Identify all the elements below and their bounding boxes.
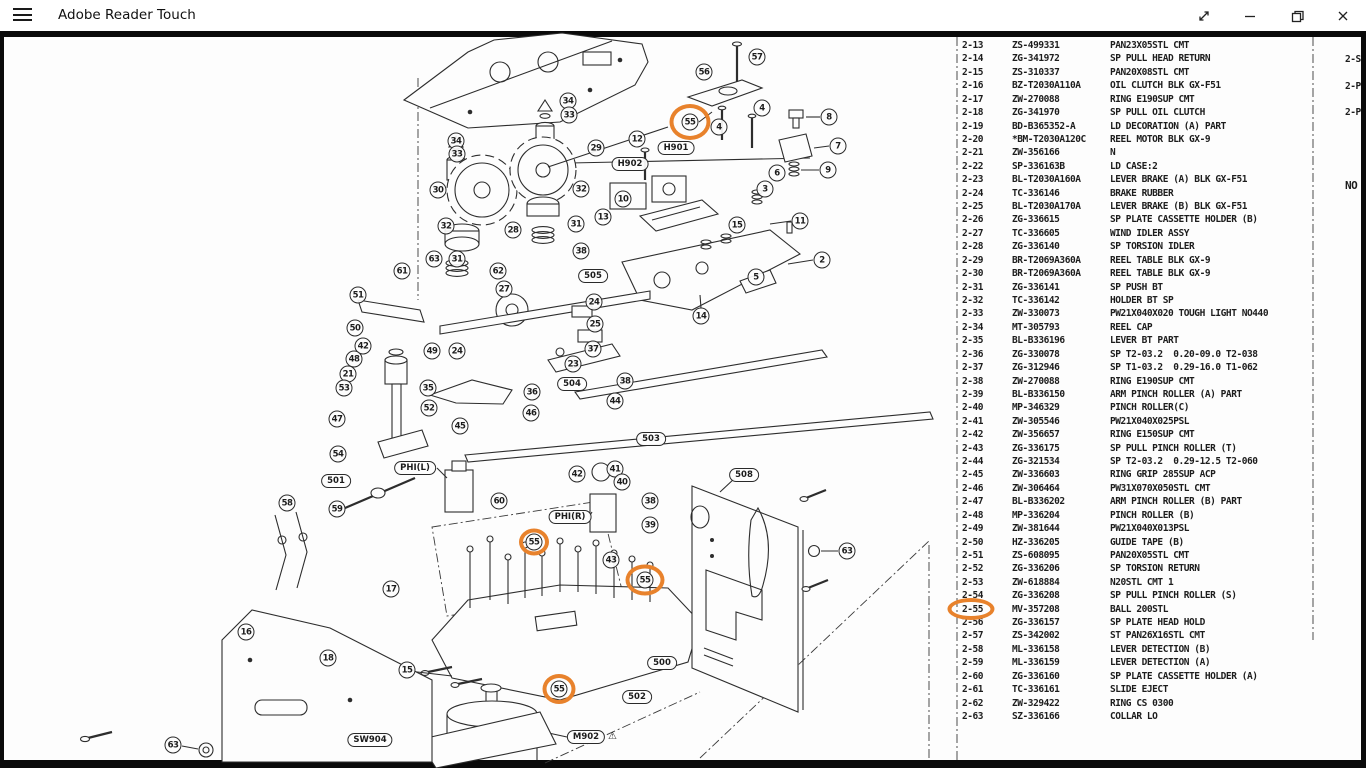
parts-desc: SP PULL PINCH ROLLER (T) [1110, 443, 1236, 454]
parts-part: ZS-366165 [1012, 37, 1059, 38]
parts-part: ZG-341970 [1012, 107, 1059, 118]
parts-desc: REEL TABLE BLK GX-9 [1110, 255, 1210, 266]
parts-ref: 2-28 [962, 241, 983, 252]
parts-desc: LD CASE:2 [1110, 161, 1157, 172]
parts-desc: SP TORSION RETURN [1110, 563, 1200, 574]
side-fragment: 2-P [1345, 81, 1361, 92]
parts-desc: PW21X040X013PSL [1110, 523, 1189, 534]
parts-desc: N [1110, 147, 1115, 158]
parts-part: BZ-T2030A110A [1012, 80, 1081, 91]
parts-ref: 2-58 [962, 644, 983, 655]
parts-part: BL-B336202 [1012, 496, 1065, 507]
app-window: Adobe Reader Touch [0, 0, 1366, 768]
parts-part: ML-336159 [1012, 657, 1059, 668]
parts-desc: LD DECORATION (A) PART [1110, 121, 1226, 132]
parts-part: TC-336605 [1012, 228, 1059, 239]
parts-part: MV-357208 [1012, 604, 1059, 615]
parts-desc: PAN20X05STL CMT [1110, 550, 1189, 561]
parts-desc: RING E190SUP CMT [1110, 376, 1194, 387]
parts-part: ZG-336160 [1012, 671, 1059, 682]
parts-ref: 2-41 [962, 416, 983, 427]
parts-ref: 2-21 [962, 147, 983, 158]
parts-part: BR-T2069A360A [1012, 268, 1081, 279]
parts-desc: SP PLATE CASSETTE HOLDER (A) [1110, 671, 1258, 682]
parts-ref: 2-24 [962, 188, 983, 199]
parts-ref: 2-54 [962, 590, 983, 601]
parts-desc: OIL CLUTCH BLK GX-F51 [1110, 80, 1221, 91]
parts-desc: SP PULL PINCH ROLLER (S) [1110, 590, 1236, 601]
parts-ref: 2-14 [962, 53, 983, 64]
parts-ref: 2-25 [962, 201, 983, 212]
parts-ref: 2-44 [962, 456, 983, 467]
parts-part: ZG-336140 [1012, 241, 1059, 252]
parts-ref: 2-50 [962, 537, 983, 548]
parts-part: ZS-499331 [1012, 40, 1059, 51]
parts-desc: SP PAN26X05STL CMT [1110, 37, 1205, 38]
fullscreen-button[interactable] [1181, 0, 1227, 31]
parts-desc: PAN20X08STL CMT [1110, 67, 1189, 78]
parts-ref: 2-20 [962, 134, 983, 145]
close-icon [1335, 8, 1351, 24]
parts-ref: 2-42 [962, 429, 983, 440]
parts-desc: SP PUSH BT [1110, 282, 1163, 293]
parts-ref: 2-33 [962, 308, 983, 319]
parts-ref: 2-23 [962, 174, 983, 185]
parts-part: ZG-336208 [1012, 590, 1059, 601]
parts-part: ZG-312946 [1012, 362, 1059, 373]
restore-icon [1289, 8, 1305, 24]
parts-part: MP-336204 [1012, 510, 1059, 521]
parts-part: TC-336142 [1012, 295, 1059, 306]
parts-ref: 2-16 [962, 80, 983, 91]
parts-part: SP-336163B [1012, 161, 1065, 172]
parts-desc: SP PULL HEAD RETURN [1110, 53, 1210, 64]
parts-ref: 2-51 [962, 550, 983, 561]
parts-part: SZ-336166 [1012, 711, 1059, 722]
parts-desc: SP PLATE CASSETTE HOLDER (B) [1110, 214, 1258, 225]
parts-desc: RING CS 0300 [1110, 698, 1173, 709]
parts-ref: 2-35 [962, 335, 983, 346]
close-button[interactable] [1320, 0, 1366, 31]
parts-part: ZG-330078 [1012, 349, 1059, 360]
parts-ref: 2-43 [962, 443, 983, 454]
parts-part: HZ-336205 [1012, 537, 1059, 548]
parts-ref: 2-55 [962, 604, 983, 615]
parts-ref: 2-59 [962, 657, 983, 668]
parts-ref: 2-15 [962, 67, 983, 78]
parts-part: MT-305793 [1012, 322, 1059, 333]
parts-desc: SP T2-03.2 0.20-09.0 T2-038 [1110, 349, 1258, 360]
parts-ref: 2-46 [962, 483, 983, 494]
parts-part: TC-336146 [1012, 188, 1059, 199]
parts-desc: LEVER BRAKE (A) BLK GX-F51 [1110, 174, 1247, 185]
parts-ref: 2-49 [962, 523, 983, 534]
parts-part: ZG-336175 [1012, 443, 1059, 454]
parts-part: ZW-329422 [1012, 698, 1059, 709]
parts-part: ZG-336157 [1012, 617, 1059, 628]
parts-list: 2-12ZS-366165SP PAN26X05STL CMT2-13ZS-49… [4, 37, 1361, 760]
hamburger-menu-icon[interactable] [13, 8, 37, 24]
parts-desc: PINCH ROLLER (B) [1110, 510, 1194, 521]
parts-ref: 2-38 [962, 376, 983, 387]
parts-desc: SP TORSION IDLER [1110, 241, 1194, 252]
parts-ref: 2-47 [962, 496, 983, 507]
side-fragment: 2-P [1345, 107, 1361, 118]
parts-part: MP-346329 [1012, 402, 1059, 413]
parts-part: ZW-330073 [1012, 308, 1059, 319]
parts-part: ZW-336603 [1012, 469, 1059, 480]
parts-desc: BALL 200STL [1110, 604, 1168, 615]
side-fragment: NO [1345, 179, 1357, 192]
parts-part: ZW-305546 [1012, 416, 1059, 427]
parts-desc: LEVER BT PART [1110, 335, 1179, 346]
parts-desc: SP T2-03.2 0.29-12.5 T2-060 [1110, 456, 1258, 467]
side-fragment: 2-S [1345, 54, 1361, 65]
parts-desc: PW31X070X050STL CMT [1110, 483, 1210, 494]
parts-ref: 2-39 [962, 389, 983, 400]
parts-part: ZW-270088 [1012, 376, 1059, 387]
fullscreen-icon [1196, 8, 1212, 24]
parts-desc: BRAKE RUBBER [1110, 188, 1173, 199]
parts-ref: 2-29 [962, 255, 983, 266]
parts-part: BL-B336196 [1012, 335, 1065, 346]
parts-desc: SP PULL OIL CLUTCH [1110, 107, 1205, 118]
parts-ref: 2-18 [962, 107, 983, 118]
parts-ref: 2-60 [962, 671, 983, 682]
parts-part: ZG-341972 [1012, 53, 1059, 64]
parts-desc: REEL TABLE BLK GX-9 [1110, 268, 1210, 279]
parts-part: ZS-310337 [1012, 67, 1059, 78]
parts-desc: SLIDE EJECT [1110, 684, 1168, 695]
parts-part: ZW-381644 [1012, 523, 1059, 534]
parts-part: ZG-336615 [1012, 214, 1059, 225]
parts-ref: 2-32 [962, 295, 983, 306]
parts-ref: 2-56 [962, 617, 983, 628]
parts-desc: RING E190SUP CMT [1110, 94, 1194, 105]
parts-part: ZW-306464 [1012, 483, 1059, 494]
parts-ref: 2-62 [962, 698, 983, 709]
parts-desc: GUIDE TAPE (B) [1110, 537, 1184, 548]
parts-desc: LEVER DETECTION (A) [1110, 657, 1210, 668]
parts-ref: 2-37 [962, 362, 983, 373]
window-title: Adobe Reader Touch [58, 7, 196, 23]
restore-button[interactable] [1274, 0, 1320, 31]
parts-desc: SP T1-03.2 0.29-16.0 T1-062 [1110, 362, 1258, 373]
parts-ref: 2-27 [962, 228, 983, 239]
parts-ref: 2-53 [962, 577, 983, 588]
parts-desc: SP PLATE HEAD HOLD [1110, 617, 1205, 628]
parts-part: ZW-356657 [1012, 429, 1059, 440]
parts-part: ML-336158 [1012, 644, 1059, 655]
parts-desc: REEL MOTOR BLK GX-9 [1110, 134, 1210, 145]
parts-desc: HOLDER BT SP [1110, 295, 1173, 306]
parts-desc: PINCH ROLLER(C) [1110, 402, 1189, 413]
parts-ref: 2-17 [962, 94, 983, 105]
parts-part: ZW-270088 [1012, 94, 1059, 105]
parts-ref: 2-30 [962, 268, 983, 279]
parts-part: BL-T2030A170A [1012, 201, 1081, 212]
parts-part: ZG-336141 [1012, 282, 1059, 293]
parts-desc: PAN23X05STL CMT [1110, 40, 1189, 51]
parts-part: BL-T2030A160A [1012, 174, 1081, 185]
parts-desc: LEVER BRAKE (B) BLK GX-F51 [1110, 201, 1247, 212]
parts-part: BL-B336150 [1012, 389, 1065, 400]
parts-ref: 2-61 [962, 684, 983, 695]
parts-desc: PW21X040X025PSL [1110, 416, 1189, 427]
parts-part: ZW-356166 [1012, 147, 1059, 158]
parts-desc: LEVER DETECTION (B) [1110, 644, 1210, 655]
parts-part: *BM-T2030A120C [1012, 134, 1086, 145]
parts-desc: RING GRIP 285SUP ACP [1110, 469, 1215, 480]
parts-part: ZS-342002 [1012, 630, 1059, 641]
parts-part: BD-B365352-A [1012, 121, 1075, 132]
minimize-icon [1242, 8, 1258, 24]
parts-desc: ARM PINCH ROLLER (A) PART [1110, 389, 1242, 400]
parts-desc: WIND IDLER ASSY [1110, 228, 1189, 239]
parts-ref: 2-57 [962, 630, 983, 641]
parts-desc: ST PAN26X16STL CMT [1110, 630, 1205, 641]
titlebar: Adobe Reader Touch [0, 0, 1366, 31]
parts-desc: N20STL CMT 1 [1110, 577, 1173, 588]
parts-desc: COLLAR LO [1110, 711, 1157, 722]
parts-desc: REEL CAP [1110, 322, 1152, 333]
parts-ref: 2-31 [962, 282, 983, 293]
parts-part: TC-336161 [1012, 684, 1059, 695]
parts-ref: 2-19 [962, 121, 983, 132]
parts-ref: 2-52 [962, 563, 983, 574]
parts-ref: 2-26 [962, 214, 983, 225]
parts-ref: 2-63 [962, 711, 983, 722]
parts-desc: PW21X040X020 TOUGH LIGHT NO440 [1110, 308, 1268, 319]
parts-ref: 2-34 [962, 322, 983, 333]
parts-ref: 2-48 [962, 510, 983, 521]
parts-desc: ARM PINCH ROLLER (B) PART [1110, 496, 1242, 507]
parts-desc: RING E150SUP CMT [1110, 429, 1194, 440]
parts-ref: 2-40 [962, 402, 983, 413]
parts-part: ZW-618884 [1012, 577, 1059, 588]
parts-ref: 2-36 [962, 349, 983, 360]
parts-ref: 2-12 [962, 37, 983, 38]
parts-part: BR-T2069A360A [1012, 255, 1081, 266]
parts-part: ZG-336206 [1012, 563, 1059, 574]
parts-ref: 2-13 [962, 40, 983, 51]
minimize-button[interactable] [1227, 0, 1273, 31]
parts-part: ZG-321534 [1012, 456, 1059, 467]
parts-ref: 2-45 [962, 469, 983, 480]
parts-ref: 2-22 [962, 161, 983, 172]
parts-part: ZS-608095 [1012, 550, 1059, 561]
